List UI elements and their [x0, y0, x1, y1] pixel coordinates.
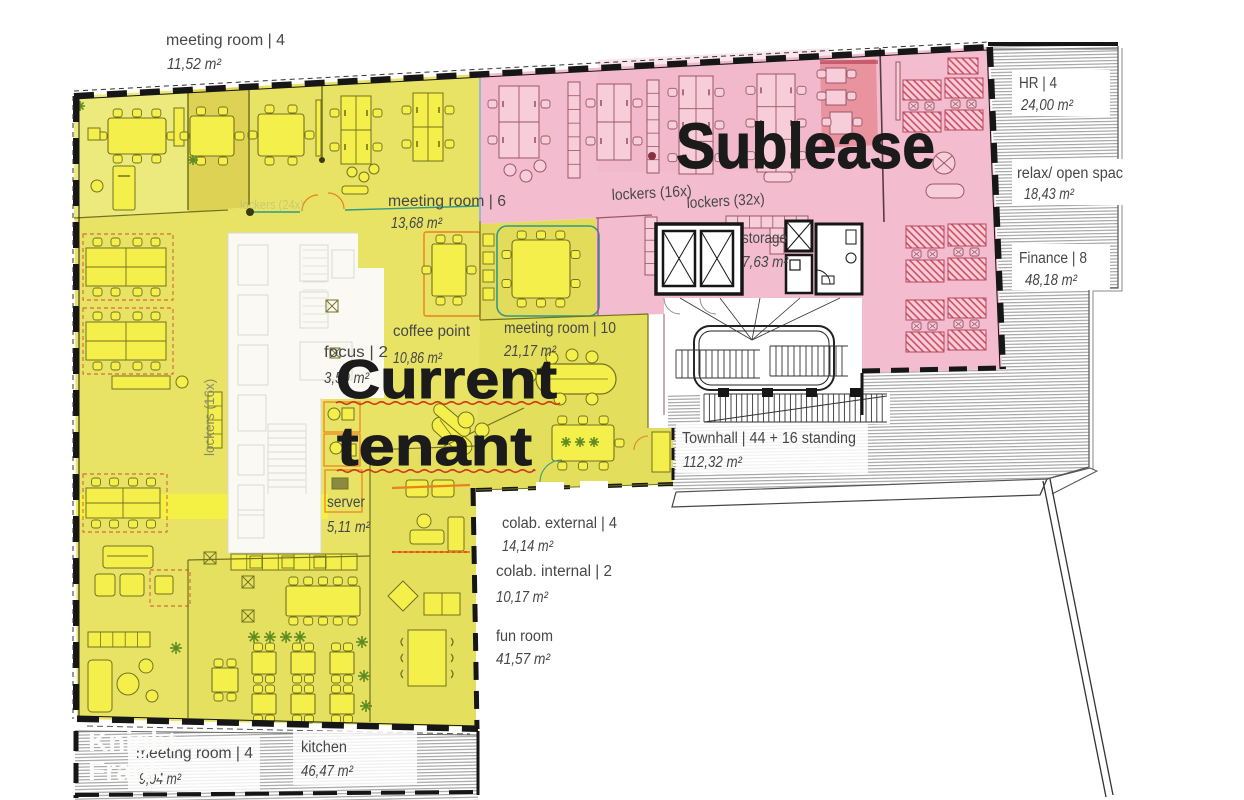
svg-text:11,52 m²: 11,52 m²: [167, 56, 222, 73]
svg-text:lockers (24x): lockers (24x): [240, 198, 304, 212]
svg-text:lockers (16x): lockers (16x): [202, 379, 217, 456]
svg-text:server: server: [327, 494, 365, 511]
svg-text:relax/ open spac: relax/ open spac: [1017, 165, 1123, 182]
svg-text:14,14 m²: 14,14 m²: [502, 538, 554, 555]
svg-text:Townhall | 44 + 16 standing: Townhall | 44 + 16 standing: [682, 430, 856, 447]
svg-text:Finance | 8: Finance | 8: [1019, 250, 1087, 267]
svg-text:46,47 m²: 46,47 m²: [301, 763, 354, 780]
svg-text:13,68 m²: 13,68 m²: [391, 215, 443, 232]
svg-text:112,32 m²: 112,32 m²: [683, 454, 743, 471]
svg-text:48,18 m²: 48,18 m²: [1025, 272, 1078, 289]
svg-text:colab. external | 4: colab. external | 4: [502, 515, 617, 532]
svg-text:Current: Current: [336, 348, 557, 410]
svg-text:colab. internal | 2: colab. internal | 2: [496, 563, 612, 580]
svg-text:5,11 m²: 5,11 m²: [327, 519, 371, 536]
svg-text:coffee point: coffee point: [393, 323, 471, 340]
svg-text:Knight: Knight: [88, 726, 177, 757]
svg-text:18,43 m²: 18,43 m²: [1024, 186, 1075, 203]
svg-text:storage: storage: [742, 230, 787, 247]
svg-text:24,00 m²: 24,00 m²: [1020, 97, 1074, 114]
svg-text:meeting room | 4: meeting room | 4: [166, 32, 285, 49]
svg-text:41,57 m²: 41,57 m²: [496, 651, 551, 668]
svg-text:Frank: Frank: [88, 755, 165, 786]
svg-text:HR | 4: HR | 4: [1019, 75, 1057, 92]
svg-text:7,63 m²: 7,63 m²: [742, 254, 789, 271]
svg-text:fun room: fun room: [496, 628, 553, 645]
svg-text:meeting room | 6: meeting room | 6: [388, 193, 506, 210]
svg-text:10,17 m²: 10,17 m²: [496, 589, 549, 606]
svg-text:kitchen: kitchen: [301, 739, 347, 756]
svg-text:tenant: tenant: [337, 415, 532, 477]
svg-text:Sublease: Sublease: [676, 110, 935, 182]
svg-text:meeting room | 10: meeting room | 10: [504, 320, 616, 337]
